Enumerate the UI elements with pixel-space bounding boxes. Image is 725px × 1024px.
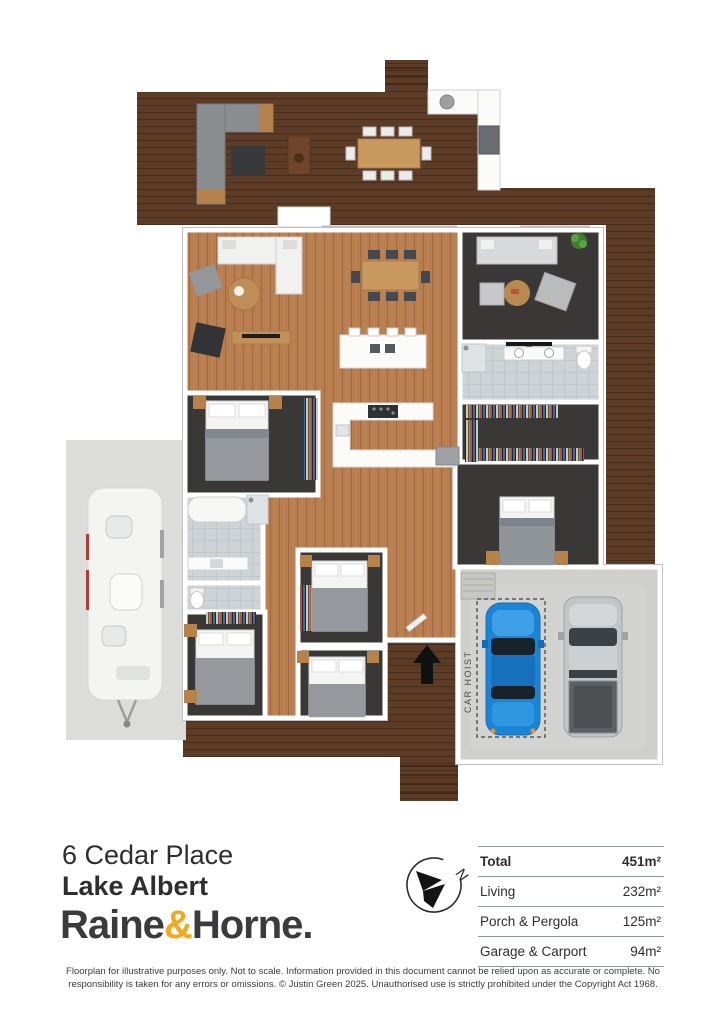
area-value: 232m²: [623, 884, 661, 899]
compass-north-label: N: [451, 866, 471, 885]
property-address: 6 Cedar Place Lake Albert: [62, 841, 233, 902]
area-value: 451m²: [622, 854, 661, 869]
logo-ampersand: &: [164, 903, 192, 947]
fridge: [436, 447, 459, 465]
kitchen-island: [340, 335, 426, 368]
outdoor-coffee-table: [231, 146, 265, 176]
address-street: 6 Cedar Place: [62, 841, 233, 871]
coffee-table: [228, 278, 260, 310]
car-hoist-label: CAR HOIST: [463, 650, 473, 713]
toilet: [191, 592, 204, 609]
porch-steps: [400, 757, 458, 801]
bbq-grill: [479, 126, 499, 154]
outdoor-sink: [440, 95, 454, 109]
table-row: Garage & Carport 94m²: [478, 936, 664, 967]
area-table: Total 451m² Living 232m² Porch & Pergola…: [478, 846, 664, 967]
area-label: Garage & Carport: [480, 944, 587, 959]
gray-ute: [558, 597, 628, 737]
compass-ring: [402, 853, 466, 917]
disclaimer-text: Floorplan for illustrative purposes only…: [57, 966, 669, 991]
compass: N: [396, 845, 476, 925]
table-row: Living 232m²: [478, 876, 664, 906]
flyer-page: CAR HOIST: [0, 0, 725, 1024]
logo-word2: Horne.: [192, 903, 313, 947]
bathtub: [188, 497, 246, 522]
area-label: Living: [480, 884, 515, 899]
area-value: 94m²: [630, 944, 661, 959]
garage-stairs: [461, 573, 495, 599]
ottoman: [190, 322, 226, 358]
bookshelf: [304, 398, 318, 480]
deck-steps-top: [385, 60, 428, 92]
blue-car: [482, 603, 544, 735]
plant: [571, 233, 587, 249]
area-label: Total: [480, 854, 511, 869]
caravan: [86, 488, 164, 728]
table-row: Total 451m²: [478, 846, 664, 876]
area-label: Porch & Pergola: [480, 914, 578, 929]
outdoor-fireplace: [278, 207, 330, 227]
logo-word1: Raine: [60, 903, 164, 947]
address-suburb: Lake Albert: [62, 871, 233, 902]
table-row: Porch & Pergola 125m²: [478, 906, 664, 936]
area-value: 125m²: [623, 914, 661, 929]
raine-and-horne-logo: Raine&Horne.: [60, 903, 313, 948]
garage-contents: CAR HOIST: [461, 573, 645, 750]
